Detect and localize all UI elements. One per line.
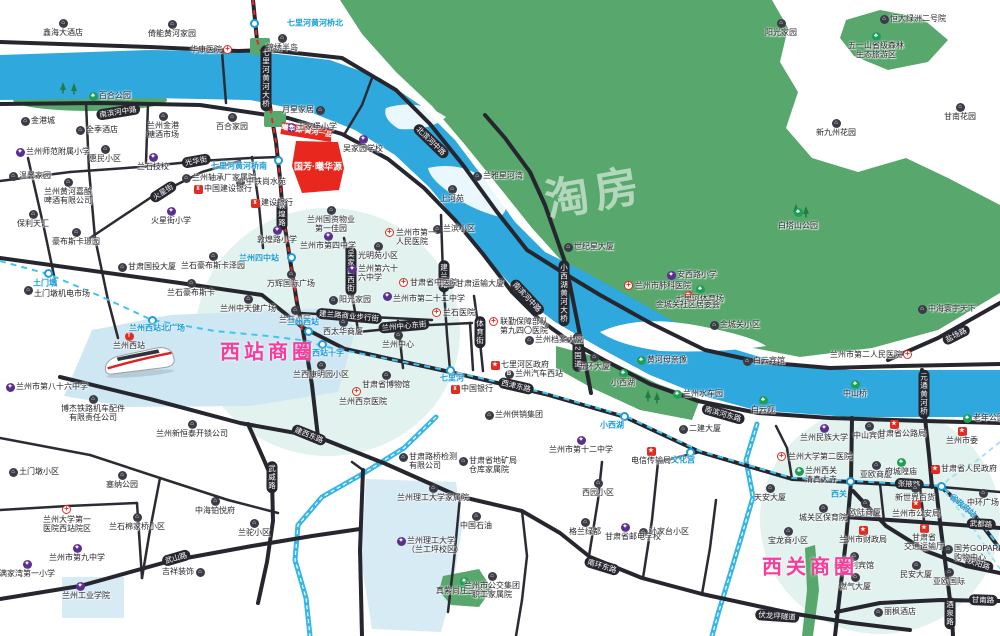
poi-label: 中国建设银行 [204,184,252,193]
building-icon[interactable]: ⌂ [472,512,481,521]
poi-label: 兰州市公安局 [892,509,940,518]
school-icon[interactable]: ✦ [348,265,357,274]
school-icon[interactable]: ✦ [667,271,676,280]
bank-icon[interactable]: ¥ [451,385,460,394]
poi-label: 中山桥 [843,389,867,398]
building-icon[interactable]: ⌂ [488,572,497,581]
poi-label: 吴家园学校 [343,144,383,153]
poi-label: 兰州第六十六中学 [358,264,398,282]
poi-label: 中铁尚水苑 [246,177,286,186]
poi-label: 中海寰宇天下 [928,304,976,313]
poi-label: 甘南花园 [944,112,976,121]
poi-label: 甘肃省交通运输厅 [904,533,944,551]
metro-station-icon[interactable] [250,19,259,28]
poi-label: 西太华商厦 [323,327,363,336]
park-icon[interactable]: ♣ [696,285,705,294]
park-icon[interactable]: ♣ [637,356,646,365]
park-icon[interactable]: ♣ [963,414,972,423]
building-icon[interactable]: ⌂ [9,172,18,181]
building-icon[interactable]: ⌂ [187,279,196,288]
poi-label: 丽枫酒店 [884,607,916,616]
poi-label: 光明苑小区 [358,251,398,260]
poi-label: 甘肃省博物馆 [362,380,410,389]
road-label: 南滨河中路 [96,103,141,121]
building-icon[interactable]: ⌂ [880,15,889,24]
school-icon[interactable]: ✦ [383,292,392,301]
metro-station-icon[interactable] [846,477,855,486]
poi-label: 兰滨小区 [443,224,475,233]
poi-label: 电信传输局 [631,456,671,465]
poi-label: 兰州大学第一医院西站院区 [43,515,91,533]
school-icon[interactable]: ✦ [16,148,25,157]
hospital-icon[interactable]: + [432,308,441,317]
road-label: 元通黄河桥 [919,370,930,419]
building-icon[interactable]: ⌂ [159,112,168,121]
building-icon[interactable]: ⌂ [679,425,688,434]
poi-label: 锦绣半岛 [266,43,298,52]
poi-label: 土门墩小区 [19,467,59,476]
hospital-icon[interactable]: + [489,317,498,326]
road-label: 武威路 [267,461,278,493]
poi-label: 兰州国资物业第一佳园 [307,215,355,233]
poi-label: 中国银行 [461,384,493,393]
school-icon[interactable]: ✦ [397,537,406,546]
poi-label: 兰州市第四中学 [300,241,356,250]
government-icon[interactable]: ★ [859,526,868,535]
poi-label: 世纪星大厦 [574,242,614,251]
metro-station-icon[interactable] [44,269,53,278]
road-label: 小西湖黄河大桥 [559,260,570,326]
poi-label: 兰州西关清真大寺 [805,466,837,484]
building-icon[interactable]: ⌂ [133,513,142,522]
business-circle-label: 西关商圈 [762,551,858,580]
building-icon[interactable]: ⌂ [29,210,38,219]
poi-label: 惠民小区 [89,154,121,163]
building-icon[interactable]: ⌂ [979,489,988,498]
poi-label: 百合家园 [216,122,248,131]
poi-label: 阳光家园 [339,295,371,304]
metro-station-label[interactable]: 土门墩 [33,278,57,289]
metro-station-label[interactable]: 西关 [831,489,847,500]
poi-label: 府城隍庙 [885,467,917,476]
road-label: 盐场路 [941,324,971,347]
road-label: 光华街 [181,153,211,169]
hospital-icon[interactable]: + [399,278,408,287]
building-icon[interactable]: ⌂ [448,185,457,194]
park-icon[interactable]: ♣ [673,390,682,399]
building-icon[interactable]: ⌂ [473,172,482,181]
building-icon[interactable]: ⌂ [291,306,300,315]
poi-label: 兰州汽车西站 [515,369,563,378]
poi-label: 兰州档案大厦 [535,335,583,344]
park-icon[interactable]: ♣ [897,458,906,467]
poi-label: 金城关小区 [720,320,760,329]
poi-label: 火星街小学 [151,216,191,225]
poi-label: 新九州花园 [816,128,856,137]
metro-station-label[interactable]: 七里河 [440,373,464,384]
poi-label: 豪布斯卡璟园 [52,237,100,246]
building-icon[interactable]: ⌂ [64,178,73,187]
poi-label: 安西路小学 [677,270,717,279]
building-icon[interactable]: ⌂ [250,519,259,528]
poi-label: 兰石技校 [137,162,169,171]
metro-station-label[interactable]: 文化宫 [671,455,695,466]
road-label: 兰州中心东街 [378,318,430,333]
building-icon[interactable]: ⌂ [944,545,953,554]
poi-label: 兰州市财政局 [839,535,887,544]
school-icon[interactable]: ✦ [76,582,85,591]
poi-label: 兰州中天健广场 [220,304,276,313]
hospital-icon[interactable]: + [223,45,232,54]
park-icon[interactable]: ♣ [872,32,881,41]
school-icon[interactable]: ✦ [149,153,158,162]
building-icon[interactable]: ⌂ [9,468,18,477]
poi-label: 黄河母亲像 [647,355,687,364]
poi-label: 敦煌路小学 [257,235,297,244]
building-icon[interactable]: ⌂ [244,295,253,304]
building-icon[interactable]: ⌂ [912,561,921,570]
park-icon[interactable]: ♣ [89,92,98,101]
poi-layer: ⌂鑫海大酒店⌂倚能黄河家园+华康医院⌂锦绣半岛⌂金港城⌂全季酒店⌂兰州金港糖酒市… [0,0,1000,636]
road-label: 西津东路 [497,377,535,396]
poi-label: 白云观 [751,405,775,414]
poi-label: 宝龙商小区 [768,536,808,545]
poi-label: 月星家居 [282,105,314,114]
building-icon[interactable]: ⌂ [59,19,68,28]
poi-label: 兰州工业学院 [62,591,110,600]
poi-label: 兰雅星河湾 [483,171,523,180]
building-icon[interactable]: ⌂ [329,296,338,305]
government-icon[interactable]: ★ [647,447,656,456]
school-icon[interactable]: ✦ [73,544,82,553]
building-icon[interactable]: ⌂ [945,568,954,577]
poi-label: 满家湾第一小学 [0,569,55,578]
poi-label: 民安大厦 [900,570,932,579]
poi-label: 甘肃省人民政府 [941,464,997,473]
poi-label: 上河苑 [440,194,464,203]
poi-label: 天安大厦 [754,493,786,502]
poi-label: 华康医院 [190,45,222,54]
hospital-icon[interactable]: + [624,281,633,290]
building-icon[interactable]: ⌂ [339,318,348,327]
government-icon[interactable]: ★ [491,361,500,370]
building-icon[interactable]: ⌂ [777,19,786,28]
building-icon[interactable]: ⌂ [766,484,775,493]
hospital-icon[interactable]: + [352,387,361,396]
building-icon[interactable]: ⌂ [228,113,237,122]
poi-label: 兰州金港糖酒市场 [147,121,179,139]
poi-label: 新世界百货 [895,493,935,502]
poi-label: 兰州师范附属小学 [26,147,90,156]
map-canvas[interactable]: ⌂鑫海大酒店⌂倚能黄河家园+华康医院⌂锦绣半岛⌂金港城⌂全季酒店⌂兰州金港糖酒市… [0,0,1000,636]
building-icon[interactable]: ⌂ [564,243,573,252]
poi-label: 西园小区 [582,488,614,497]
poi-label: 老年公园 [973,413,1000,422]
poi-label: 兰州新恒泰开锁公司 [156,429,228,438]
poi-label: 温馨家园 [19,171,51,180]
poi-label: 兰州市第十二中学 [549,445,613,454]
poi-label: 万辉国际广场 [267,279,315,288]
poi-label: 中国石油 [460,521,492,530]
poi-label: 兰州理工大学家属院 [397,493,469,502]
school-icon[interactable]: ✦ [167,207,176,216]
building-icon[interactable]: ⌂ [485,411,494,420]
poi-label: 鑫海大酒店 [43,28,83,37]
hospital-icon[interactable]: + [903,350,912,359]
building-icon[interactable]: ⌂ [525,336,534,345]
building-icon[interactable]: ⌂ [459,457,468,466]
poi-label: 国芳GOPARK购物中心 [954,544,1000,562]
poi-label: 兰州市第九中学 [49,553,105,562]
poi-label: 恒大绿洲二号院 [890,14,946,23]
road-label: 北滨河中路 [412,122,451,160]
government-icon[interactable]: ★ [958,427,967,436]
building-icon[interactable]: ⌂ [382,371,391,380]
poi-label: 亚欧国际 [933,577,965,586]
building-icon[interactable]: ⌂ [832,119,841,128]
poi-label: 吉祥装饰 [162,567,194,576]
hospital-icon[interactable]: + [385,228,394,237]
poi-label: 兰驼小区 [238,528,270,537]
road-label: 体育街 [475,316,486,348]
poi-label: 甘肃省中医院 [410,278,458,287]
poi-label: 金城关社区居委会 [656,300,720,309]
poi-label: 兰州西站 [113,341,145,350]
building-icon[interactable]: ⌂ [76,126,85,135]
poi-label: 格兰绿都 [569,527,601,536]
building-icon[interactable]: ⌂ [594,479,603,488]
poi-label: 兰石棉家桥小区 [109,522,165,531]
school-icon[interactable]: ✦ [23,560,32,569]
poi-label: 兰州市第二人民医院 [830,350,902,359]
poi-label: 兰州市委 [946,436,978,445]
building-icon[interactable]: ⌂ [316,106,325,115]
park-icon[interactable]: ♣ [619,369,628,378]
building-icon[interactable]: ⌂ [24,286,33,295]
poi-label: 兰西康明园小区 [293,370,349,379]
building-icon[interactable]: ⌂ [168,20,177,29]
building-icon[interactable]: ⌂ [196,568,205,577]
building-icon[interactable]: ⌂ [21,117,30,126]
poi-label: 甘肃省地矿局仓库家属院 [469,456,517,474]
school-icon[interactable]: ✦ [6,383,15,392]
road-label: 伏龙坪隧道 [755,609,799,623]
building-icon[interactable]: ⌂ [429,484,438,493]
building-icon[interactable]: ⌂ [861,499,870,508]
building-icon[interactable]: ⌂ [182,174,191,183]
building-icon[interactable]: ⌂ [874,608,883,617]
park-icon[interactable]: ♣ [794,208,803,217]
poi-label: 阳光家园 [765,28,797,37]
metro-station-label[interactable]: 兰州西站北广场 [129,323,185,334]
metro-station-icon[interactable] [304,327,313,336]
metro-station-label[interactable]: 兰州四中站 [239,253,279,264]
government-icon[interactable]: ★ [920,524,929,533]
road-label: 南滨河中路 [508,277,546,316]
building-icon[interactable]: ⌂ [865,422,874,431]
poi-label: 兰石医院 [443,308,475,317]
poi-label: 甘肃省邮电学校 [605,532,661,541]
bus-station-icon[interactable]: B [505,370,514,379]
bank-icon[interactable]: ¥ [194,185,203,194]
poi-label: 二建大厦 [689,424,721,433]
hospital-icon[interactable]: + [777,452,786,461]
metro-station-icon[interactable] [287,253,296,262]
poi-label: 五环大厦 [578,362,610,371]
poi-label: 燃气大厦 [839,582,871,591]
poi-label: 白云宾馆 [753,356,785,365]
metro-station-label[interactable]: 小西湖 [600,420,624,431]
poi-label: 甘肃国投大厦 [128,262,176,271]
poi-label: 兰州市肺科医院 [635,281,691,290]
bank-icon[interactable]: ¥ [251,199,260,208]
metro-station-icon[interactable] [274,156,283,165]
poi-label: 兰州市第八十六中学 [16,382,88,391]
building-icon[interactable]: ⌂ [399,453,408,462]
school-icon[interactable]: ✦ [820,424,829,433]
poi-label: 兰州民族大学 [800,433,848,442]
building-icon[interactable]: ⌂ [956,103,965,112]
building-icon[interactable]: ⌂ [89,395,98,404]
road-label: 火星街 [148,180,178,205]
poi-label: 保利天汇 [17,219,49,228]
building-icon[interactable]: ⌂ [287,270,296,279]
metro-station-label[interactable]: 七里河黄河桥南 [211,161,267,172]
building-icon[interactable]: ⌂ [710,321,719,330]
metro-station-label[interactable]: 兰州西站 [287,317,319,328]
building-icon[interactable]: ⌂ [590,353,599,362]
building-icon[interactable]: ⌂ [743,357,752,366]
building-icon[interactable]: ⌂ [918,305,927,314]
poi-label: 兰州市第二十二中学 [393,294,465,303]
building-icon[interactable]: ⌂ [327,206,336,215]
poi-label: 倚能黄河家园 [148,29,196,38]
business-circle-label: 西站商圈 [220,336,316,365]
building-icon[interactable]: ⌂ [101,145,110,154]
building-icon[interactable]: ⌂ [394,331,403,340]
metro-station-icon[interactable] [937,482,946,491]
building-icon[interactable]: ⌂ [581,518,590,527]
building-icon[interactable]: ⌂ [209,252,218,261]
building-icon[interactable]: ⌂ [911,484,920,493]
park-icon[interactable]: ♣ [759,396,768,405]
school-icon[interactable]: ✦ [273,226,282,235]
road-label: 建西东路 [290,423,327,447]
poi-label: 兰州中心 [382,340,414,349]
project-block-label[interactable]: 国芳·曦华源 [294,160,342,173]
poi-label: 兰州理工大学（兰工坪校区） [407,536,463,554]
poi-label: 建设银行 [261,198,293,207]
poi-label: 城关区保育院 [799,513,847,522]
poi-label: 中海铂悦府 [195,506,235,515]
road-label: 酒泉路 [945,597,956,629]
poi-label: 兰州水车园 [683,389,723,398]
road-label: 七里河黄河大桥 [261,45,272,111]
building-icon[interactable]: ⌂ [819,504,828,513]
building-icon[interactable]: ⌂ [872,461,881,470]
road-label: 南滨河东路 [701,403,746,426]
park-icon[interactable]: ♣ [851,380,860,389]
metro-station-label[interactable]: 七里河黄河桥北 [287,18,343,29]
poi-label: 兰州供销集团 [495,410,543,419]
building-icon[interactable]: ⌂ [188,420,197,429]
poi-label: 博杰铁路机车配件有限责任公司 [61,404,125,422]
poi-label: 兰州市公交集团职工家属院 [464,581,520,599]
building-icon[interactable]: ⌂ [278,34,287,43]
building-icon[interactable]: ⌂ [374,242,383,251]
poi-label: 兰石豪布斯卡 [167,288,215,297]
hospital-icon[interactable]: + [62,505,71,514]
poi-label: 王家堡小学 [297,122,337,131]
poi-label: 白塔山公园 [778,221,818,230]
poi-label: 金港城 [31,116,55,125]
metro-station-label[interactable]: 西站十字 [312,348,344,359]
poi-label: 兰州大学第二医院 [788,452,852,461]
road-label: 武山路 [161,549,191,567]
poi-label: 兰石豪布斯卡泽园 [181,261,245,270]
poi-label: 七里河区政府 [501,360,549,369]
building-icon[interactable]: ⌂ [118,263,127,272]
park-icon[interactable]: ♣ [795,467,804,476]
poi-label: 欧陆商厦 [849,508,881,517]
school-icon[interactable]: ✦ [359,135,368,144]
poi-label: 甘肃运输大厦 [456,279,504,288]
road-label: 甘南路 [969,594,998,606]
poi-label: 甘肃省公路局 [878,429,926,438]
poi-label: 百合公园 [99,91,131,100]
government-icon[interactable]: ★ [890,420,899,429]
poi-label: 塞纳公园 [106,480,138,489]
school-icon[interactable]: ✦ [621,523,630,532]
road-label: 建兰路商业步行街 [316,308,383,325]
poi-label: 全季酒店 [86,125,118,134]
poi-label: 甘肃路桥检测有限公司 [409,452,457,470]
school-icon[interactable]: ✦ [577,436,586,445]
poi-label: 兰州黄河嘉酿啤酒有限公司 [44,187,92,205]
poi-label: 兰州西京医院 [339,397,387,406]
building-icon[interactable]: ⌂ [211,497,220,506]
poi-label: 五一山省级森林生态旅游区 [848,41,904,59]
building-icon[interactable]: ⌂ [118,471,127,480]
road-label: 南环东路 [583,555,621,576]
poi-label: 小西湖 [611,378,635,387]
building-icon[interactable]: ⌂ [317,361,326,370]
poi-label: 兰州市第一人民医院 [396,228,436,246]
building-icon[interactable]: ⌂ [72,228,81,237]
poi-label: 联勤保障部队第九四〇医院 [500,317,548,335]
government-icon[interactable]: ★ [931,465,940,474]
poi-label: 土门墩机电市场 [34,289,90,298]
building-icon[interactable]: ⌂ [784,527,793,536]
